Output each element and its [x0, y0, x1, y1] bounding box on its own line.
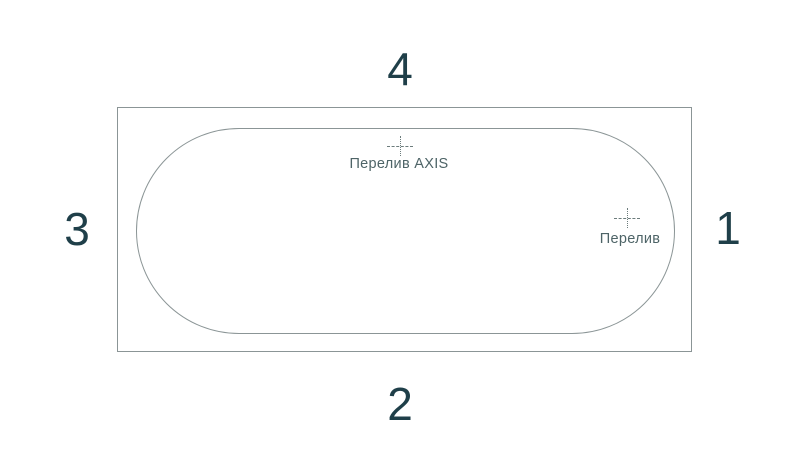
- overflow-axis-label: Перелив AXIS: [349, 156, 448, 172]
- center-mark-icon: [614, 208, 640, 228]
- center-mark-icon: [387, 136, 413, 156]
- bathtub-diagram: 4 2 3 1 Перелив AXIS Перелив: [0, 0, 800, 464]
- center-mark-vertical-line: [400, 136, 401, 156]
- overflow-label: Перелив: [600, 231, 661, 247]
- side-number-left: 3: [64, 206, 90, 252]
- center-mark-vertical-line: [627, 208, 628, 228]
- side-number-top: 4: [387, 46, 413, 92]
- side-number-right: 1: [715, 205, 741, 251]
- side-number-bottom: 2: [387, 381, 413, 427]
